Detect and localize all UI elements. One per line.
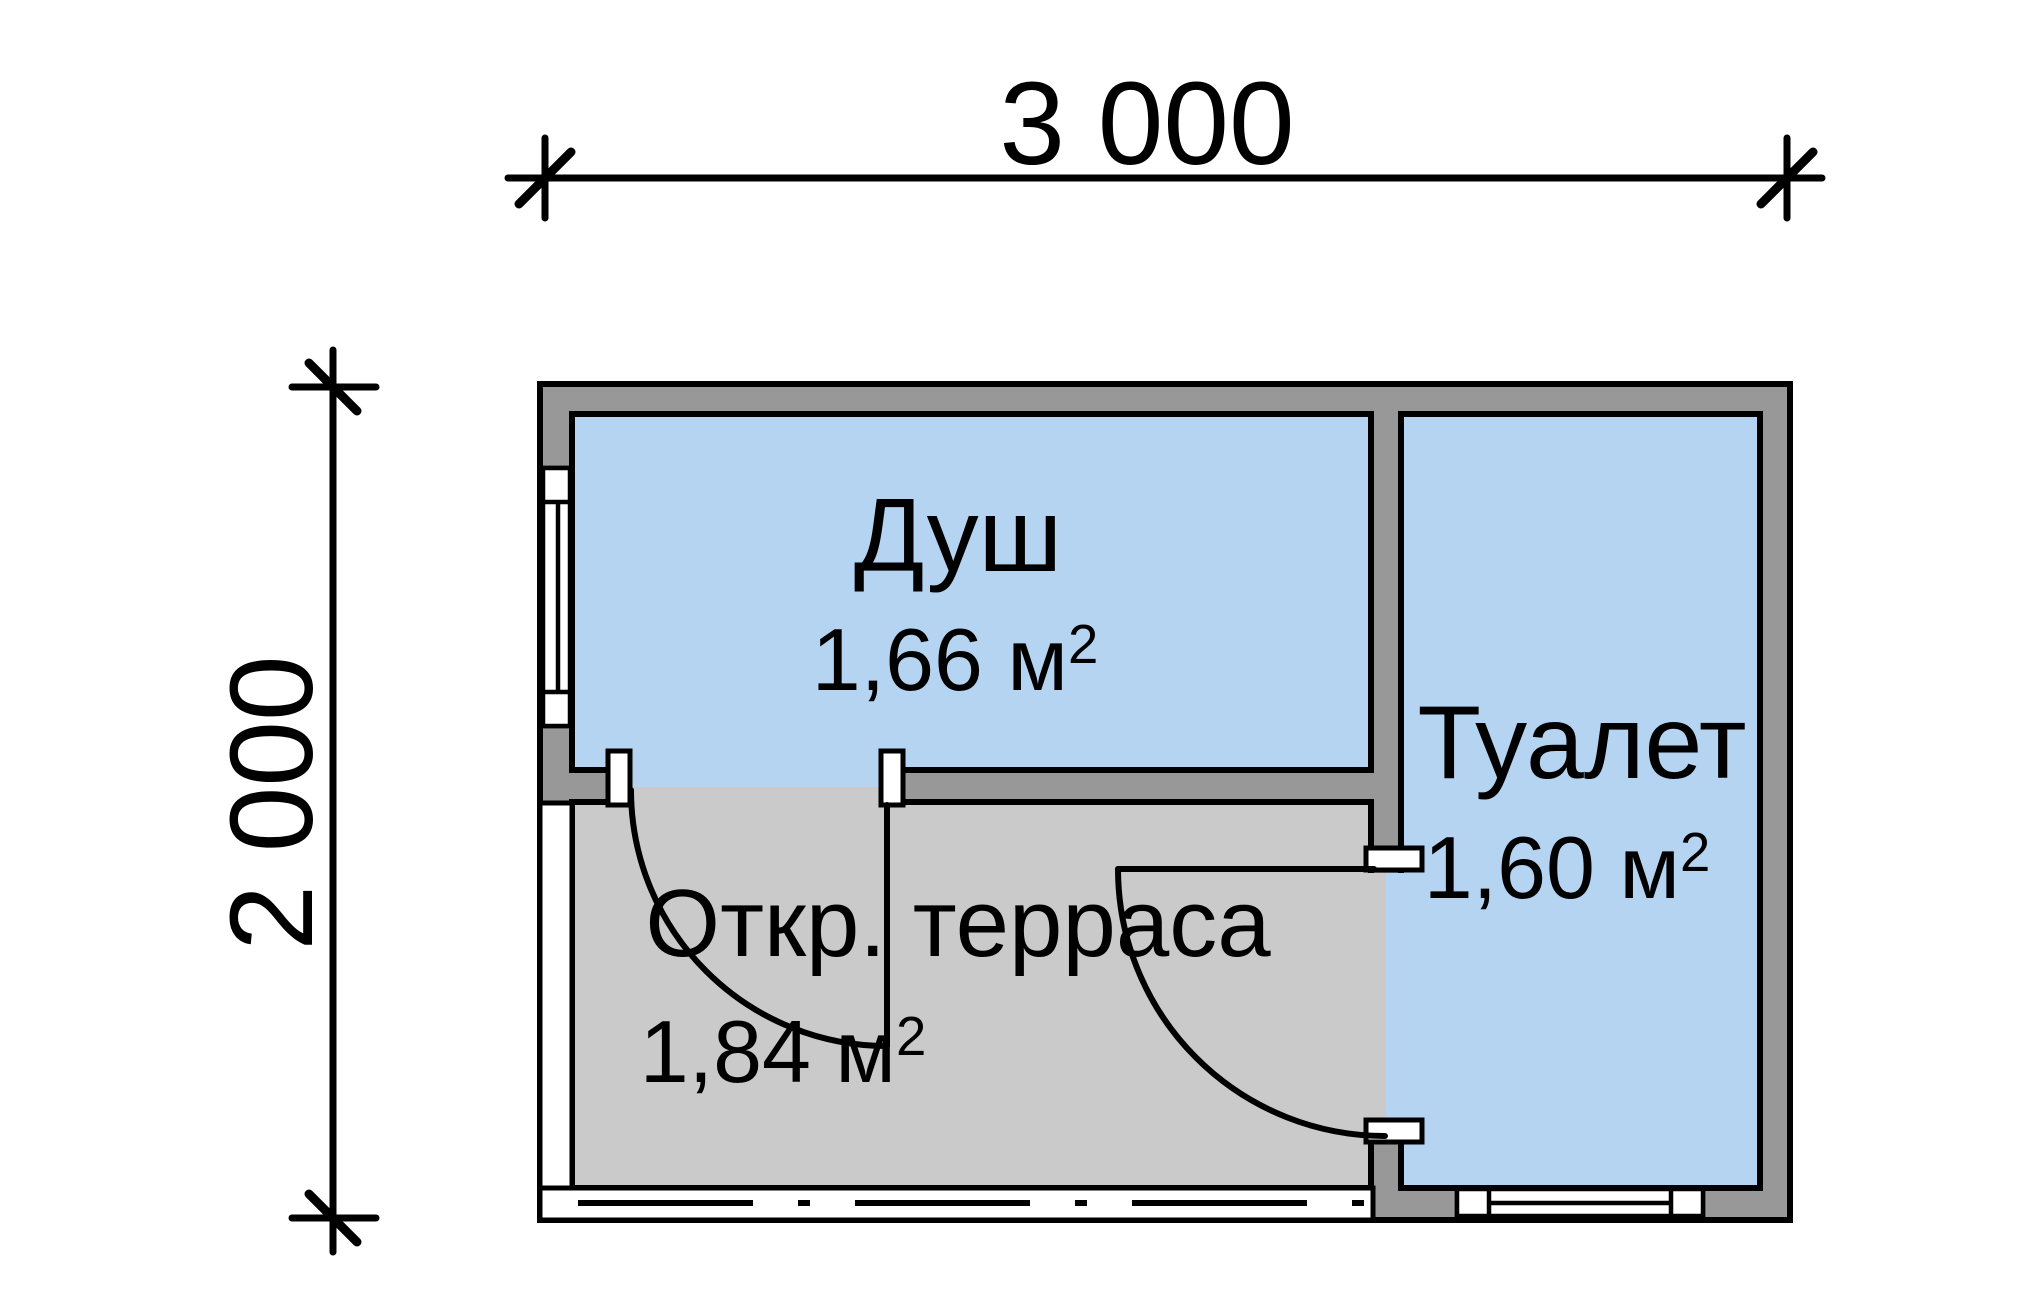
shower-door-opening-inner [631,764,880,789]
room-toilet-area: 1,60 м2 [1424,824,1711,912]
room-shower-area-sup: 2 [1068,614,1098,675]
room-toilet-area-value: 1,60 м [1424,818,1680,917]
room-shower-area: 1,66 м2 [812,616,1099,704]
shower-door-opening-outer [631,787,880,808]
room-terrace-name: Откр. терраса [645,876,1270,972]
room-terrace-area: 1,84 м2 [640,1008,927,1096]
room-shower-name: Душ [854,484,1062,588]
room-toilet-name: Туалет [1417,691,1746,795]
toilet-window-sill-left [1457,1189,1489,1216]
room-toilet-area-sup: 2 [1680,822,1710,883]
toilet-window-sill-right [1671,1189,1703,1216]
shower-door-jamb-left [608,751,630,805]
shower-window-sill-top [543,468,570,502]
room-shower-area-value: 1,66 м [812,610,1068,709]
floor-plan-screenshot: 3 000 2 000 Душ 1,66 м2 Откр. терраса 1,… [0,0,2033,1308]
room-terrace-area-sup: 2 [896,1006,926,1067]
terrace-open-edge-left [540,803,572,1220]
dimension-height-label: 2 000 [213,655,331,950]
dimension-width-label: 3 000 [999,65,1294,183]
shower-window-sill-bottom [543,692,570,726]
room-terrace-area-value: 1,84 м [640,1002,896,1101]
terrace-floor [572,802,1371,1188]
toilet-door-opening-inner [1386,873,1404,1119]
shower-door-jamb-right [881,751,903,805]
toilet-room-floor [1401,414,1760,1188]
toilet-door-opening-outer [1364,873,1386,1119]
